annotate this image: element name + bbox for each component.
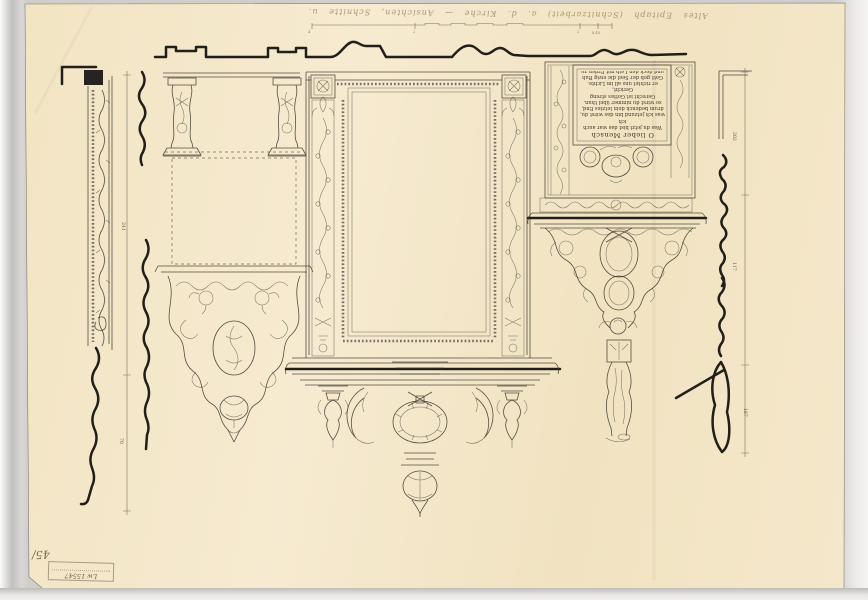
dimension-value: 202: [731, 132, 737, 141]
epitaph-header: O lieber Mensch: [579, 131, 666, 139]
cherub-ornaments: [580, 146, 653, 183]
carved-bracket: [545, 228, 693, 334]
inventory-stamp: Lw 15547: [48, 561, 114, 582]
baluster: [163, 78, 201, 156]
corner-rosette: [502, 75, 526, 98]
dimension-value: 70: [118, 438, 124, 444]
sheet-edge: [25, 3, 845, 593]
measure-label: 2: [577, 30, 579, 34]
epitaph-line: was ich jetzund bin das wirst du,: [579, 111, 666, 117]
right-dimension-chain: 202 117 187: [731, 68, 749, 457]
stamp-number: Lw 15547: [49, 570, 113, 581]
top-measure-line: [312, 23, 612, 29]
epitaph-line: drum bedenck dein letztes End,: [579, 105, 666, 111]
epitaph-inscription: O lieber Mensch Was du jetzt bist das wa…: [579, 71, 666, 139]
dimension-value: 117: [731, 262, 737, 271]
measure-label: 4: [308, 30, 311, 34]
epitaph-line: er richtet uns all im Lichte.: [579, 80, 666, 86]
baluster: [268, 78, 306, 156]
strip-top-block: [84, 70, 103, 85]
epitaph-line: Gott geb der Seel die ewig Ruh: [579, 74, 666, 80]
drop-finial: [497, 386, 527, 448]
drawing-canvas: 241 70: [0, 0, 868, 600]
carved-corbel: [155, 266, 313, 442]
corner-rosette: [311, 75, 335, 98]
dashed-hidden-outline: [172, 158, 296, 264]
epitaph-line: so wirst du nimmer übel thun.: [579, 99, 666, 105]
measure-label: 8.40: [592, 31, 601, 35]
left-profile-strip: [62, 67, 112, 504]
dimension-value: 241: [120, 222, 126, 231]
dimension-value: 187: [742, 408, 748, 417]
tablet-ornament-strip: [551, 66, 569, 195]
pilaster-garland: [502, 97, 524, 356]
handwritten-mark: 45/: [32, 548, 50, 562]
leader-line: [676, 370, 724, 398]
scanner-edge: [0, 588, 868, 600]
console-assembly: [155, 73, 313, 442]
pilaster-garland: [312, 97, 334, 356]
drop-finial: [318, 386, 348, 448]
measure-label: 2: [413, 30, 415, 34]
top-measure-labels: 4 2 2 8.40: [308, 30, 601, 35]
scanned-drawing-page: { "colors": { "paper": "#f4e7c7", "ink":…: [0, 0, 868, 600]
left-moulding-profiles: [139, 72, 149, 449]
epitaph-line: und deck den Leib mit Erden zu: [579, 71, 666, 74]
pendant-baluster: [401, 453, 439, 517]
epitaph-line: Was du jetzt bist das war auch ich: [579, 117, 666, 129]
pendant-figure: [606, 340, 632, 442]
left-dimension-chain: 241 70: [118, 71, 131, 515]
tablet-ornament-strip: [671, 66, 689, 178]
tablet-frieze: [540, 198, 692, 212]
right-corner-bracket: [719, 71, 752, 139]
top-section-profile: [155, 42, 686, 57]
right-moulding-profile: [712, 155, 729, 452]
centre-frame: [285, 72, 560, 517]
tablet-cornice: [528, 213, 706, 228]
epitaph-line: Gerecht ist Gottes streng Gericht,: [579, 86, 666, 98]
